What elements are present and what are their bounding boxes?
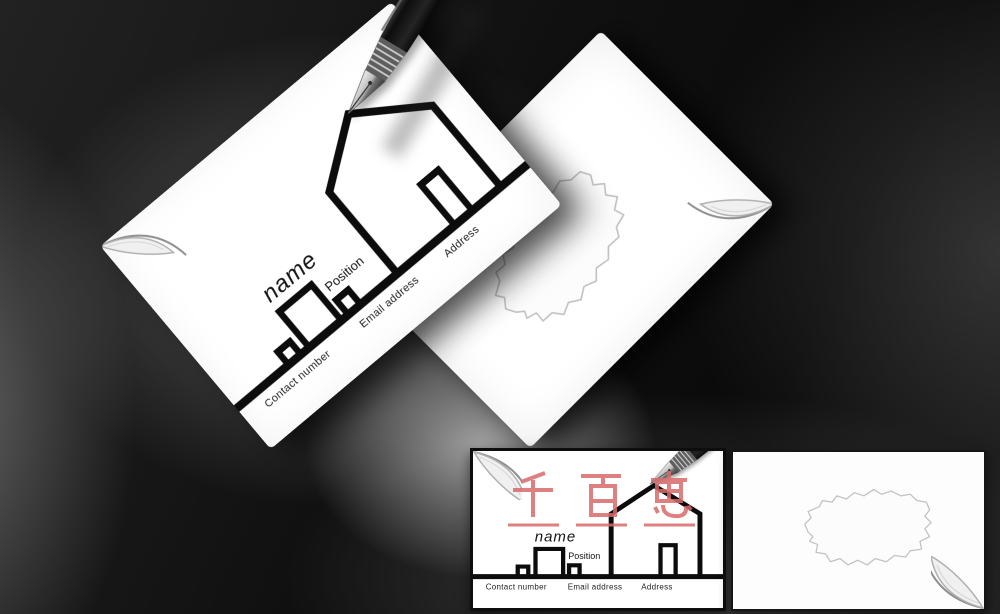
page-curl-icon	[931, 556, 986, 611]
position-placeholder: Position	[568, 551, 600, 561]
thumbnail-front-card: name Position Contact number Email addre…	[470, 448, 726, 611]
thumbnail-back-card	[731, 450, 986, 611]
address-placeholder: Address	[641, 582, 672, 591]
stain-outline	[784, 477, 952, 579]
watermark-text: 千百惠	[501, 465, 701, 545]
watermark-glyphs	[501, 465, 701, 545]
page-curl-icon	[661, 145, 774, 264]
email-address-placeholder: Email address	[568, 582, 623, 591]
contact-number-placeholder: Contact number	[486, 582, 547, 591]
business-card-mockup-scene: { "front_card": { "name": "name", "posit…	[0, 0, 1000, 614]
